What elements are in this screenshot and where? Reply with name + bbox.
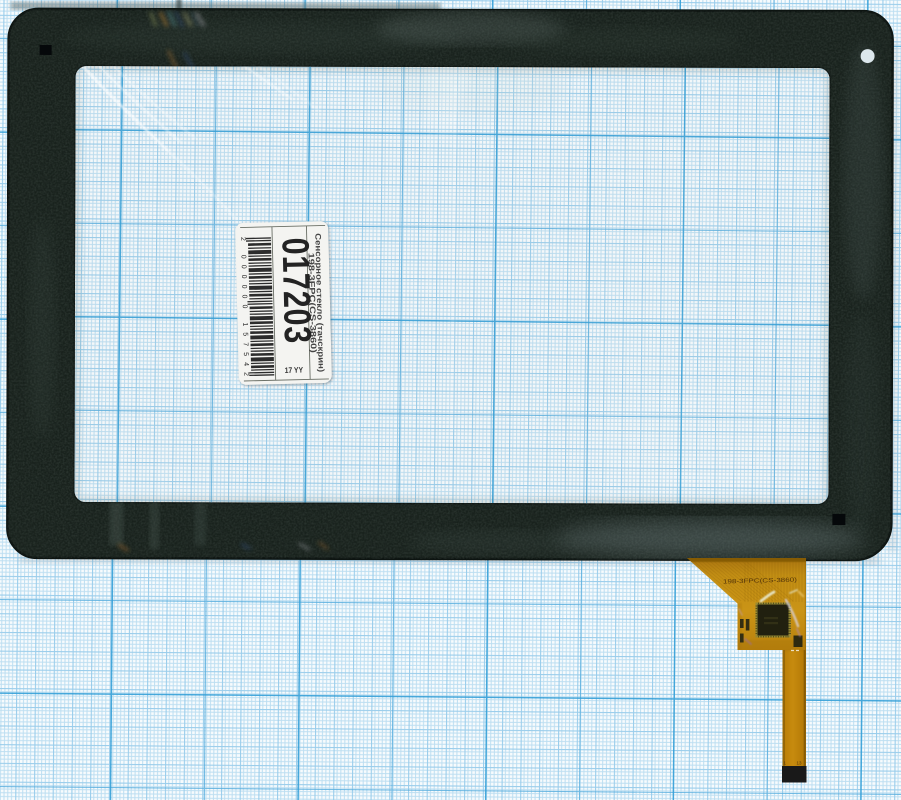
svg-text:2 000000 157542: 2 000000 157542 bbox=[239, 237, 249, 376]
svg-text:13: 13 bbox=[797, 761, 803, 766]
